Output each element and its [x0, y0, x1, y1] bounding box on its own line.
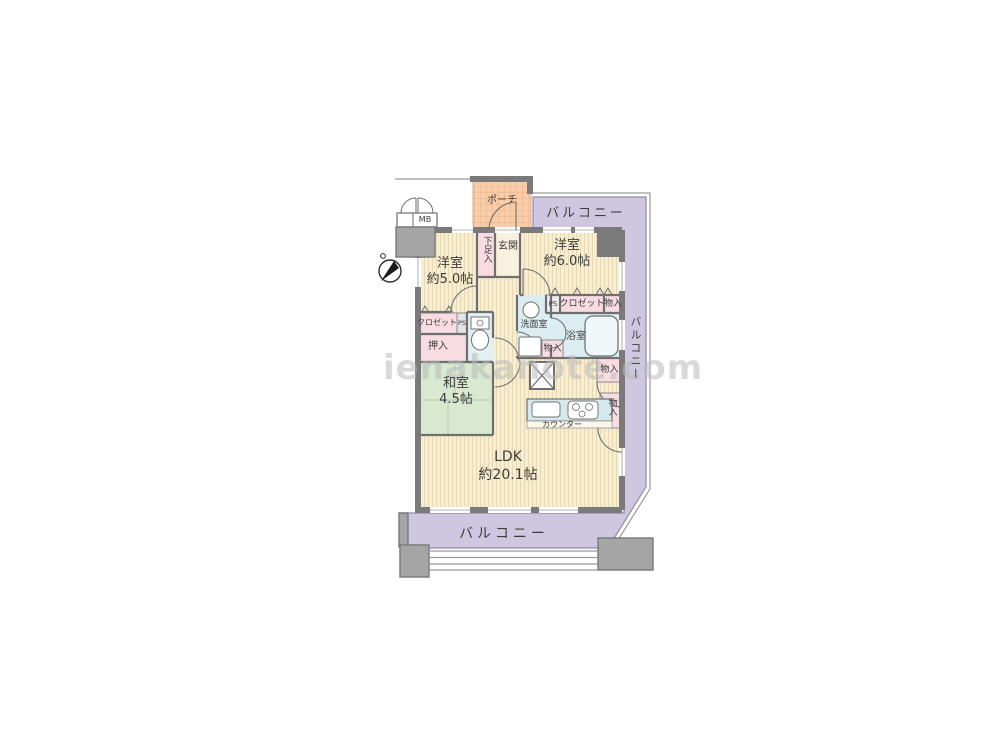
japanese-room-name: 和室: [439, 376, 473, 392]
closet-left-label: クロゼット: [417, 318, 457, 328]
closet-right-label: クロゼット: [559, 299, 604, 310]
japanese-room-size: 4.5帖: [439, 392, 473, 408]
storage-kitchen-label: 物入: [605, 398, 616, 416]
counter-label: カウンター: [542, 420, 582, 430]
bedroom2-label: 洋室 約6.0帖: [544, 238, 591, 271]
storage-washroom-label: 物入: [543, 344, 561, 355]
porch-label: ポーチ: [487, 195, 517, 208]
sink-icon: [532, 402, 560, 417]
japanese-room-label: 和室 4.5帖: [439, 376, 473, 409]
shoe-box-label: 下足入: [480, 236, 491, 263]
storage-top-right-label: 物入: [604, 299, 622, 310]
bedroom2-name: 洋室: [544, 238, 591, 254]
mb-label: MB: [419, 215, 431, 225]
floor-plan-page: ienakanote.com ポーチ バルコニー バルコニー バルコニー MB …: [0, 0, 1000, 750]
balcony-top-label: バルコニー: [546, 206, 626, 222]
washroom-label: 洗面室: [520, 320, 547, 331]
wall-notch: [597, 231, 622, 257]
storage-mid-right-label: 物入: [600, 365, 618, 376]
entrance-floor: [495, 232, 520, 277]
stove-icon: [568, 401, 598, 419]
ps-right-label: PS: [549, 300, 558, 309]
entrance-label: 玄関: [498, 241, 518, 254]
ldk-name: LDK: [478, 449, 537, 467]
bedroom1-label: 洋室 約5.0帖: [427, 256, 474, 289]
ldk-size: 約20.1帖: [478, 467, 537, 485]
bedroom2-size: 約6.0帖: [544, 254, 591, 270]
ps-left-label: PS: [458, 319, 466, 327]
compass-icon: [379, 254, 401, 282]
oshiire-label: 押入: [428, 341, 448, 354]
bath-label: 浴室: [566, 331, 586, 344]
toilet-icon: [471, 317, 489, 350]
ldk-label: LDK 約20.1帖: [478, 449, 537, 484]
bedroom1-size: 約5.0帖: [427, 272, 474, 288]
balcony-right-label: バルコニー: [628, 316, 642, 381]
balcony-bottom-label: バルコニー: [459, 526, 549, 544]
bedroom1-name: 洋室: [427, 256, 474, 272]
railing-lines: [429, 551, 598, 570]
